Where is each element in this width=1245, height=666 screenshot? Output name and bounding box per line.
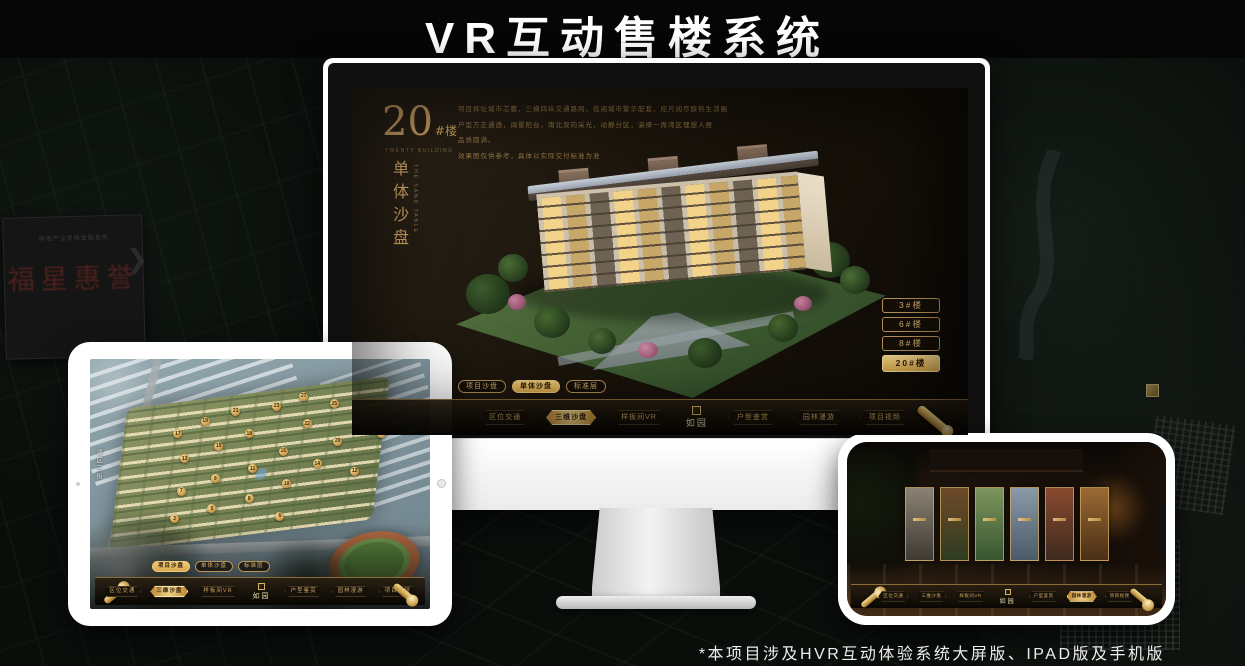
card-label-mark — [948, 518, 961, 521]
building-badge[interactable]: 8 — [245, 494, 254, 503]
nav-item-label: 三维沙盘 — [921, 593, 941, 598]
logo-text: 如园 — [1000, 596, 1016, 605]
app-logo: 如园 — [1000, 589, 1016, 605]
building-badge[interactable]: 19 — [201, 417, 210, 426]
nav-left-group: 区位交通三维沙盘样板间VR — [480, 410, 666, 425]
nav-item[interactable]: 户型鉴赏 — [1029, 591, 1059, 602]
nav-item-label: 样板间VR — [959, 593, 981, 598]
building-badge[interactable]: 3 — [170, 514, 179, 523]
nav-item-label: 项目视频 — [385, 588, 411, 594]
nav-item[interactable]: 区位交通 — [878, 591, 908, 602]
scene-card[interactable] — [975, 487, 1004, 561]
scene-card[interactable] — [1045, 487, 1074, 561]
street-label: 湖区三街 — [94, 449, 103, 481]
view-tab[interactable]: 标准层 — [238, 561, 270, 573]
badge-number: 27 — [301, 393, 307, 399]
floor-button-label: 8#楼 — [899, 338, 923, 348]
footnote-text: *本项目涉及HVR互动体验系统大屏版、IPAD版及手机版 — [699, 640, 1165, 664]
nav-item-label: 户型鉴赏 — [737, 414, 769, 421]
badge-number: 9 — [214, 476, 217, 482]
building-badge[interactable]: 25 — [330, 399, 339, 408]
badge-number: 8 — [248, 496, 251, 502]
nav-item[interactable]: 园林漫游 — [1067, 591, 1097, 602]
app-logo: 如园 — [253, 583, 271, 601]
badge-number: 11 — [250, 466, 255, 472]
building-badge[interactable]: 18 — [245, 429, 254, 438]
view-tab-label: 标准层 — [244, 563, 264, 569]
nav-item[interactable]: 样板间VR — [197, 586, 238, 598]
nav-item-label: 项目视频 — [869, 414, 901, 421]
logo-text: 如园 — [686, 416, 708, 429]
building-badge[interactable]: 7 — [177, 487, 186, 496]
view-tab[interactable]: 项目沙盘 — [458, 380, 506, 393]
nav-item[interactable]: 三维沙盘 — [546, 410, 596, 425]
scene-card[interactable] — [1010, 487, 1039, 561]
tree — [688, 338, 722, 368]
seal-icon — [1005, 589, 1011, 595]
building-badge[interactable]: 12 — [350, 467, 359, 476]
building-heading: 20#楼 — [382, 102, 457, 142]
building-badge[interactable]: 23 — [272, 402, 281, 411]
scroll-menu-icon[interactable] — [916, 404, 952, 435]
phone-app-screen: 区位交通三维沙盘样板间VR 如园 户型鉴赏园林漫游项目视频 — [847, 442, 1166, 616]
card-label-mark — [913, 518, 926, 521]
nav-item-label: 园林漫游 — [803, 414, 835, 421]
building-badge[interactable]: 15 — [214, 442, 223, 451]
nav-item[interactable]: 区位交通 — [103, 586, 141, 598]
tablet-home-button — [437, 479, 446, 488]
badge-number: 15 — [216, 443, 222, 449]
badge-number: 21 — [233, 408, 239, 414]
view-tab[interactable]: 单体沙盘 — [512, 380, 560, 393]
tablet-view-tabs: 项目沙盘单体沙盘标准层 — [152, 561, 270, 573]
nav-item[interactable]: 三维沙盘 — [150, 586, 188, 598]
monitor-stand-base — [556, 596, 756, 609]
desktop-bottom-nav: 区位交通三维沙盘样板间VR 如园 户型鉴赏园林漫游项目视频 — [352, 399, 968, 435]
plaque-subtext: 房地产业发展金融宣传 — [14, 231, 134, 243]
scene-card[interactable] — [1080, 487, 1109, 561]
description-line: 项目择址城市芯麓，三横四纵交通路网，揽阅城市繁华配套，咫尺阅尽醇熟生活圈 — [458, 102, 838, 118]
building-badge[interactable]: 6 — [275, 512, 284, 521]
badge-number: 17 — [175, 431, 181, 437]
card-label-mark — [983, 518, 996, 521]
nav-item[interactable]: 区位交通 — [480, 410, 530, 425]
badge-number: 10 — [284, 481, 290, 487]
tree — [840, 266, 870, 294]
nav-item-label: 项目视频 — [1110, 593, 1130, 598]
nav-item[interactable]: 园林漫游 — [794, 410, 844, 425]
nav-item-label: 园林漫游 — [338, 588, 364, 594]
badge-number: 25 — [332, 401, 338, 407]
view-tab[interactable]: 单体沙盘 — [195, 561, 233, 573]
pink-shrub — [508, 294, 526, 310]
building-badge[interactable]: 17 — [173, 429, 182, 438]
badge-number: 6 — [279, 513, 282, 519]
logo-text: 如园 — [253, 591, 271, 601]
pink-shrub — [638, 342, 658, 358]
nav-item-label: 样板间VR — [621, 414, 657, 421]
tablet-camera-dot — [76, 482, 80, 486]
building-badge[interactable]: 10 — [282, 479, 291, 488]
chevron-right-icon: ❯ — [126, 244, 148, 275]
building-badge[interactable]: 22 — [303, 419, 312, 428]
view-tab-label: 项目沙盘 — [466, 383, 498, 390]
tree — [498, 254, 528, 282]
floor-button[interactable]: 6#楼 — [882, 317, 940, 332]
nav-item[interactable]: 三维沙盘 — [916, 591, 946, 602]
view-tab-label: 项目沙盘 — [158, 563, 184, 569]
view-tab-label: 标准层 — [574, 383, 598, 390]
badge-number: 12 — [352, 468, 358, 474]
phone-bottom-nav: 区位交通三维沙盘样板间VR 如园 户型鉴赏园林漫游项目视频 — [851, 584, 1162, 608]
scene-card[interactable] — [940, 487, 969, 561]
nav-item-label: 区位交通 — [489, 414, 521, 421]
tree — [466, 274, 510, 314]
building-block — [524, 143, 836, 319]
phone-device: 区位交通三维沙盘样板间VR 如园 户型鉴赏园林漫游项目视频 — [838, 433, 1175, 625]
building-badge[interactable]: 21 — [231, 407, 240, 416]
nav-right-group: 户型鉴赏园林漫游项目视频 — [728, 410, 910, 425]
nav-item-label: 户型鉴赏 — [1034, 593, 1054, 598]
nav-left-group: 区位交通三维沙盘样板间VR — [878, 591, 986, 602]
view-tab[interactable]: 标准层 — [566, 380, 606, 393]
view-tab-label: 单体沙盘 — [201, 563, 227, 569]
background-gold-logo — [1146, 384, 1159, 397]
badge-number: 16 — [281, 448, 287, 454]
building-3d-model[interactable] — [438, 146, 908, 416]
badge-number: 13 — [182, 456, 188, 462]
badge-number: 19 — [202, 418, 208, 424]
building-suffix: #楼 — [435, 124, 457, 138]
background-plaque: 房地产业发展金融宣传 福星惠誉 — [2, 214, 146, 360]
nav-item[interactable]: 园林漫游 — [332, 586, 370, 598]
floor-button[interactable]: 8#楼 — [882, 336, 940, 351]
tablet-app-screen: 2725232126192224171820151613141211910785… — [90, 359, 430, 609]
tree — [534, 306, 570, 338]
nav-item-label: 区位交通 — [883, 593, 903, 598]
monitor-stand — [592, 508, 720, 600]
nav-item-label: 户型鉴赏 — [291, 588, 317, 594]
tree — [768, 314, 798, 342]
plaque-calligraphy: 福星惠誉 — [4, 255, 143, 298]
building-badge[interactable]: 27 — [299, 392, 308, 401]
poster-title: VR互动售楼系统 — [0, 2, 1245, 66]
nav-item[interactable]: 样板间VR — [612, 410, 666, 425]
nav-left-group: 区位交通三维沙盘样板间VR — [103, 586, 238, 598]
phone-notch — [1157, 501, 1164, 557]
section-vertical-title: 单体沙盘 — [387, 160, 411, 252]
building-badge[interactable]: 13 — [180, 454, 189, 463]
badge-number: 20 — [335, 438, 341, 444]
nav-item[interactable]: 户型鉴赏 — [285, 586, 323, 598]
view-tab-label: 单体沙盘 — [520, 383, 552, 390]
floor-button-label: 20#楼 — [896, 358, 927, 368]
badge-number: 5 — [211, 506, 214, 512]
building-badge[interactable]: 11 — [248, 464, 257, 473]
building-badge[interactable]: 20 — [333, 437, 342, 446]
badge-number: 23 — [274, 403, 280, 409]
background-river — [995, 150, 1085, 360]
floor-button[interactable]: 20#楼 — [882, 355, 940, 372]
building-badge[interactable]: 5 — [207, 504, 216, 513]
nav-item[interactable]: 户型鉴赏 — [728, 410, 778, 425]
nav-right-group: 户型鉴赏园林漫游项目视频 — [1029, 591, 1135, 602]
description-line: 户型方正通透，阔景阳台，南北双向采光，动静分区，演绎一席湾区理想人居 — [458, 118, 838, 134]
badge-number: 7 — [180, 488, 183, 494]
poster-canvas: 房地产业发展金融宣传 福星惠誉 ❯ VR互动售楼系统 20#楼 TWENTY B… — [0, 0, 1245, 666]
tablet-bottom-nav: 区位交通三维沙盘样板间VR 如园 户型鉴赏园林漫游项目视频 — [95, 577, 425, 605]
building-badge[interactable]: 16 — [279, 447, 288, 456]
app-logo: 如园 — [686, 406, 708, 429]
floor-button-label: 3#楼 — [899, 300, 923, 310]
badge-number: 14 — [315, 461, 321, 467]
badge-number: 3 — [173, 516, 176, 522]
card-label-mark — [1053, 518, 1066, 521]
nav-item-label: 样板间VR — [203, 588, 232, 594]
tablet-device: 2725232126192224171820151613141211910785… — [68, 342, 452, 626]
nav-item-label: 三维沙盘 — [156, 588, 182, 594]
floor-button[interactable]: 3#楼 — [882, 298, 940, 313]
interior-door-beam — [930, 449, 1083, 472]
nav-item[interactable]: 样板间VR — [954, 591, 986, 602]
card-label-mark — [1088, 518, 1101, 521]
building-badge[interactable]: 14 — [313, 459, 322, 468]
building-badge[interactable]: 9 — [211, 474, 220, 483]
nav-item[interactable]: 项目视频 — [860, 410, 910, 425]
seal-icon — [258, 583, 265, 590]
nav-item-label: 三维沙盘 — [555, 414, 587, 421]
floor-button-label: 6#楼 — [899, 319, 923, 329]
view-tab[interactable]: 项目沙盘 — [152, 561, 190, 573]
scene-card[interactable] — [905, 487, 934, 561]
seal-icon — [692, 406, 701, 415]
desktop-view-tabs: 项目沙盘单体沙盘标准层 — [458, 380, 606, 393]
nav-item-label: 园林漫游 — [1072, 593, 1092, 598]
section-vertical-caption: THE SAND TABLE — [412, 164, 418, 234]
pink-shrub — [794, 296, 812, 311]
tree — [588, 328, 616, 354]
nav-item-label: 区位交通 — [109, 588, 135, 594]
nav-right-group: 户型鉴赏园林漫游项目视频 — [285, 586, 417, 598]
card-label-mark — [1018, 518, 1031, 521]
building-number: 20 — [382, 99, 433, 145]
floor-button-group: 3#楼6#楼8#楼20#楼 — [882, 298, 940, 372]
scene-card-strip — [905, 487, 1109, 561]
badge-number: 22 — [304, 421, 310, 427]
badge-number: 18 — [247, 431, 253, 437]
